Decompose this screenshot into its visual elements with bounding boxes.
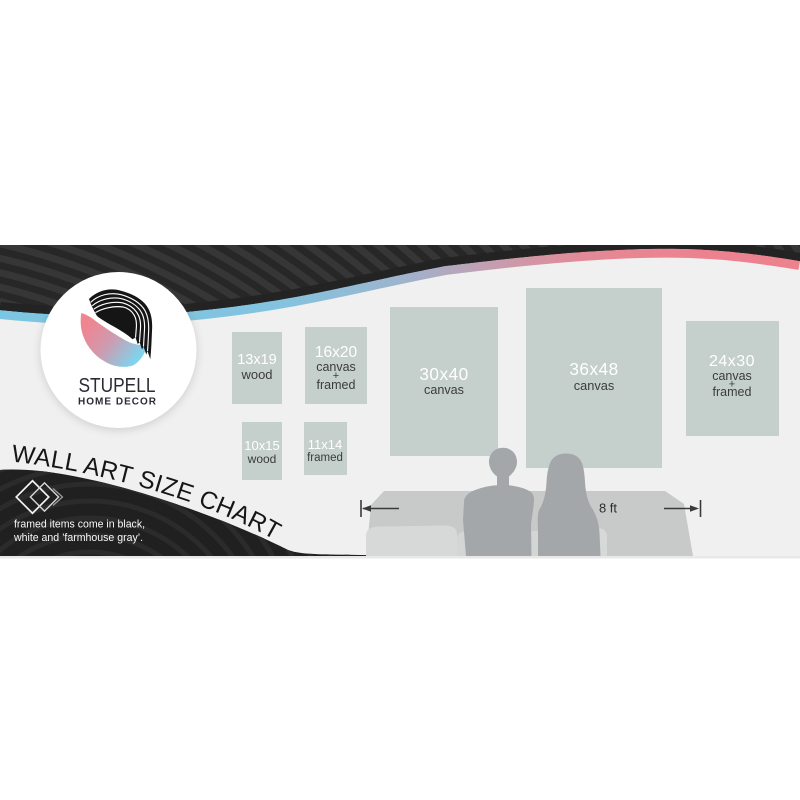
svg-text:8 ft: 8 ft: [599, 501, 617, 516]
svg-text:16x20: 16x20: [315, 344, 358, 361]
svg-text:36x48: 36x48: [569, 359, 618, 379]
svg-text:STUPELL: STUPELL: [79, 375, 156, 397]
svg-text:11x14: 11x14: [308, 437, 342, 452]
svg-text:30x40: 30x40: [419, 364, 468, 384]
svg-text:framed items come in black,: framed items come in black,: [14, 519, 145, 531]
svg-text:framed: framed: [307, 452, 343, 464]
svg-text:24x30: 24x30: [709, 353, 755, 370]
svg-text:canvas: canvas: [424, 383, 464, 397]
svg-text:framed: framed: [317, 378, 356, 392]
svg-text:white and ’farmhouse gray’.: white and ’farmhouse gray’.: [13, 532, 143, 544]
svg-text:canvas: canvas: [574, 378, 615, 393]
svg-text:framed: framed: [713, 385, 752, 399]
svg-text:wood: wood: [240, 367, 272, 382]
svg-text:HOME DECOR: HOME DECOR: [78, 397, 157, 408]
svg-text:10x15: 10x15: [244, 438, 279, 453]
svg-text:13x19: 13x19: [237, 352, 277, 368]
svg-text:wood: wood: [247, 452, 277, 466]
